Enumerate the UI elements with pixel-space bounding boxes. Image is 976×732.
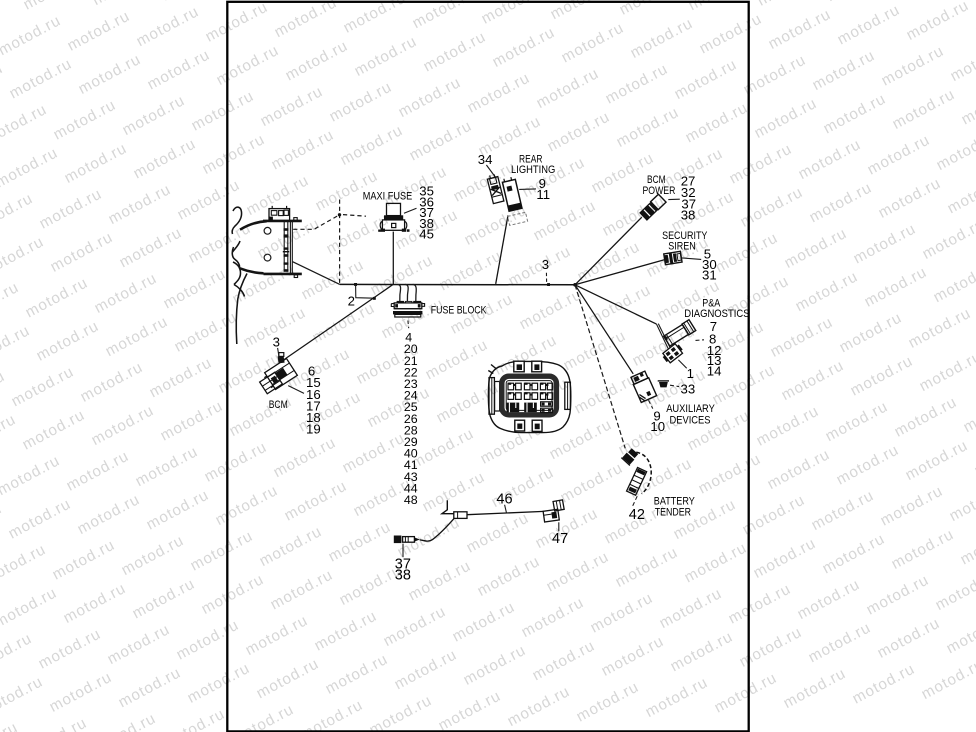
svg-text:BCM: BCM xyxy=(269,399,288,411)
svg-text:47: 47 xyxy=(552,531,568,547)
svg-text:MAXI FUSE: MAXI FUSE xyxy=(363,190,412,202)
svg-text:3: 3 xyxy=(273,335,280,350)
svg-text:TENDER: TENDER xyxy=(655,507,691,519)
svg-text:DIAGNOSTICS: DIAGNOSTICS xyxy=(684,308,749,320)
svg-text:SIREN: SIREN xyxy=(668,241,696,253)
svg-text:LIGHTING: LIGHTING xyxy=(511,164,555,176)
svg-text:1: 1 xyxy=(687,366,694,381)
svg-text:42: 42 xyxy=(629,507,645,523)
svg-text:DEVICES: DEVICES xyxy=(670,414,711,426)
svg-text:34: 34 xyxy=(478,152,493,167)
svg-text:14: 14 xyxy=(707,364,722,379)
svg-text:AUXILIARY: AUXILIARY xyxy=(666,403,715,415)
svg-text:48: 48 xyxy=(404,493,418,507)
svg-text:46: 46 xyxy=(496,492,512,508)
svg-text:31: 31 xyxy=(702,267,717,282)
svg-text:33: 33 xyxy=(681,382,696,397)
svg-text:38: 38 xyxy=(681,207,696,222)
svg-text:3: 3 xyxy=(542,257,549,272)
svg-text:FUSE BLOCK: FUSE BLOCK xyxy=(431,305,487,317)
svg-text:10: 10 xyxy=(650,419,665,434)
svg-text:11: 11 xyxy=(536,187,550,202)
svg-text:45: 45 xyxy=(419,227,434,242)
svg-text:38: 38 xyxy=(395,567,411,583)
svg-text:2: 2 xyxy=(348,293,355,308)
svg-text:19: 19 xyxy=(306,422,321,437)
